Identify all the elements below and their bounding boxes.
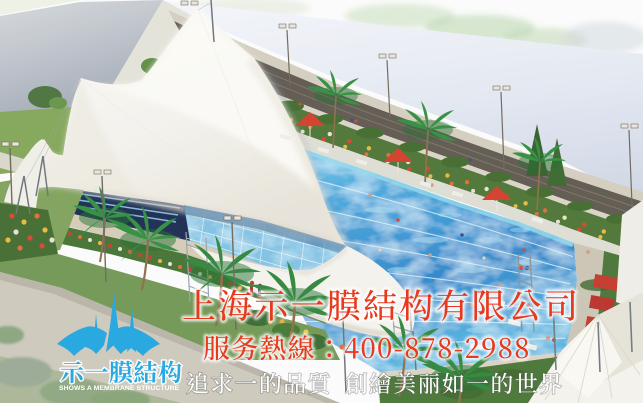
svg-text:SHOWS A MEMBRANE STRUCTURE: SHOWS A MEMBRANE STRUCTURE [59, 385, 180, 392]
